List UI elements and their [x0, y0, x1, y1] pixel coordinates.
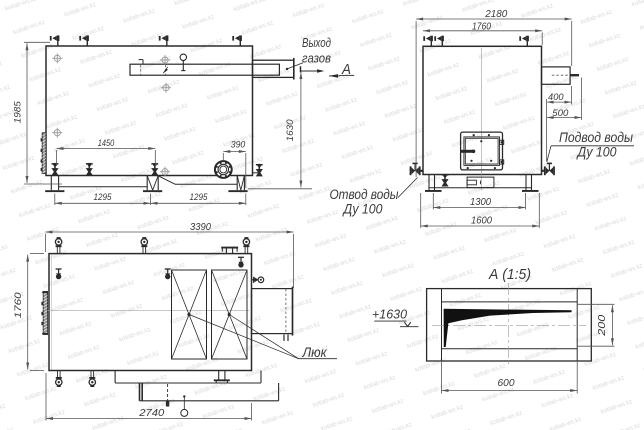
- svg-text:600: 600: [498, 377, 515, 389]
- svg-text:3390: 3390: [190, 222, 211, 233]
- svg-text:Отвод воды: Отвод воды: [330, 187, 399, 202]
- svg-text:1760: 1760: [472, 22, 491, 33]
- svg-text:200: 200: [596, 315, 608, 337]
- svg-text:1295: 1295: [94, 192, 113, 202]
- svg-text:2740: 2740: [138, 407, 164, 419]
- svg-text:А (1:5): А (1:5): [488, 266, 531, 283]
- svg-text:1985: 1985: [13, 100, 24, 123]
- svg-text:Ду 100: Ду 100: [342, 202, 383, 217]
- svg-text:390: 390: [231, 140, 246, 150]
- svg-text:Выход: Выход: [302, 35, 331, 50]
- svg-text:Подвод воды: Подвод воды: [559, 130, 633, 145]
- svg-text:1450: 1450: [98, 138, 115, 148]
- svg-text:2180: 2180: [484, 9, 507, 20]
- svg-text:газов: газов: [302, 51, 331, 66]
- svg-text:1760: 1760: [13, 292, 24, 319]
- svg-text:Люк: Люк: [302, 345, 328, 360]
- svg-text:1300: 1300: [470, 197, 491, 208]
- svg-text:+1630: +1630: [372, 307, 408, 322]
- svg-text:500: 500: [552, 108, 568, 118]
- svg-text:1295: 1295: [190, 192, 209, 202]
- svg-text:400: 400: [548, 92, 564, 102]
- svg-text:1630: 1630: [285, 119, 296, 142]
- svg-text:1600: 1600: [471, 216, 492, 227]
- svg-text:Ду 100: Ду 100: [576, 145, 617, 160]
